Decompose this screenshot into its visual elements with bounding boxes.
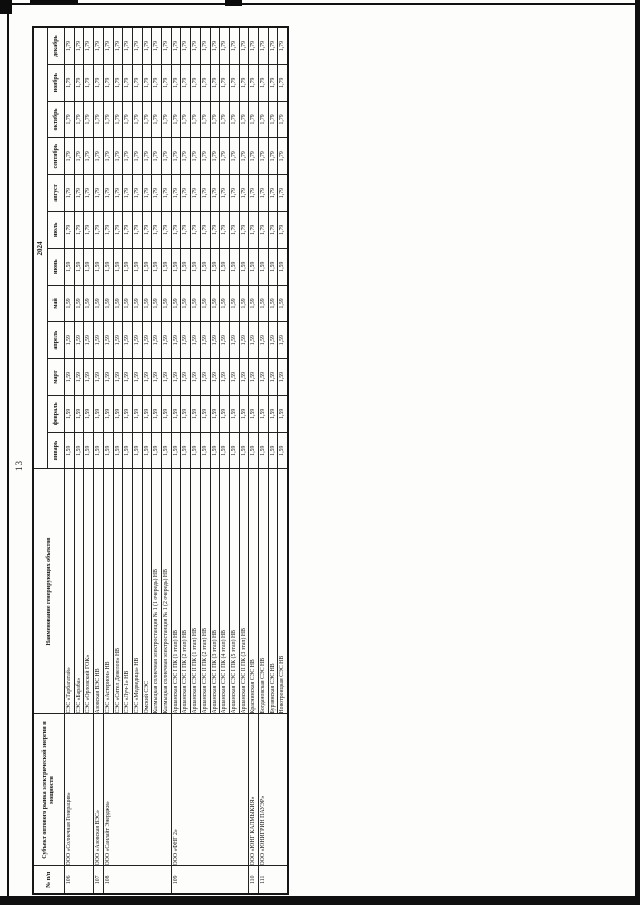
value-cell: 1,79 [278,27,288,64]
table-row: 110ООО «ЮНГ КАЛМЫКИЯ»Краснинская СЭС НВ1… [249,27,259,894]
value-cell: 1,59 [210,322,220,359]
value-cell: 1,79 [123,138,133,175]
value-cell: 1,79 [249,175,259,212]
value-cell: 1,59 [103,395,113,432]
value-cell: 1,79 [74,138,84,175]
value-cell: 1,79 [152,27,162,64]
value-cell: 1,59 [200,248,210,285]
value-cell: 1,59 [152,359,162,396]
value-cell: 1,79 [142,64,152,101]
value-cell: 1,59 [132,395,142,432]
value-cell: 1,79 [84,138,94,175]
value-cell: 1,59 [103,322,113,359]
value-cell: 1,79 [123,175,133,212]
value-cell: 1,59 [249,395,259,432]
object-name-cell: Аршанская СЭС I ПК (2 этап) НВ [181,469,191,714]
value-cell: 1,59 [259,359,269,396]
value-cell: 1,59 [84,432,94,469]
value-cell: 1,59 [220,432,230,469]
value-cell: 1,59 [229,395,239,432]
value-cell: 1,59 [142,359,152,396]
scanned-document-page: 13 № п/п Субъект оптового рынка электрич… [0,0,640,905]
value-cell: 1,79 [249,101,259,138]
value-cell: 1,79 [181,211,191,248]
value-cell: 1,79 [191,101,201,138]
value-cell: 1,79 [162,211,172,248]
value-cell: 1,79 [229,101,239,138]
value-cell: 1,79 [84,175,94,212]
value-cell: 1,79 [103,64,113,101]
object-name-cell: Богдановская СЭС НВ [259,469,269,714]
value-cell: 1,59 [74,395,84,432]
subject-cell: ООО «ЮНГ КАЛМЫКИЯ» [249,714,259,866]
value-cell: 1,59 [210,359,220,396]
object-name-cell: СЭС «Луч-1» НВ [123,469,133,714]
value-cell: 1,79 [132,101,142,138]
object-name-cell: СЭС «Бараба» [74,469,84,714]
table-row: 109ООО «ФНГ 2»Аршанская СЭС I ПК (1 этап… [171,27,181,894]
value-cell: 1,79 [84,27,94,64]
value-cell: 1,79 [162,138,172,175]
value-cell: 1,79 [152,101,162,138]
value-cell: 1,79 [259,175,269,212]
value-cell: 1,59 [84,359,94,396]
value-cell: 1,59 [210,285,220,322]
value-cell: 1,79 [210,27,220,64]
row-number-cell: 108 [103,866,171,894]
value-cell: 1,59 [239,322,249,359]
value-cell: 1,59 [229,359,239,396]
value-cell: 1,79 [171,211,181,248]
value-cell: 1,59 [191,395,201,432]
value-cell: 1,59 [249,359,259,396]
value-cell: 1,59 [171,359,181,396]
value-cell: 1,79 [278,101,288,138]
value-cell: 1,59 [74,285,84,322]
row-number-cell: 109 [171,866,249,894]
subject-cell: ООО «Санлайт Энерджи» [103,714,171,866]
value-cell: 1,79 [278,64,288,101]
value-cell: 1,79 [65,175,75,212]
object-name-cell: СЭС «Астерион» НВ [103,469,113,714]
value-cell: 1,59 [220,322,230,359]
value-cell: 1,79 [113,211,123,248]
month-header-cell: май [48,285,65,322]
value-cell: 1,59 [181,359,191,396]
generating-objects-table: № п/п Субъект оптового рынка электрическ… [32,26,289,895]
value-cell: 1,59 [152,432,162,469]
month-header-cell: декабрь [48,27,65,64]
value-cell: 1,79 [171,27,181,64]
value-cell: 1,59 [268,322,278,359]
value-cell: 1,79 [191,211,201,248]
value-cell: 1,59 [152,248,162,285]
value-cell: 1,79 [181,138,191,175]
value-cell: 1,59 [132,432,142,469]
value-cell: 1,59 [239,359,249,396]
value-cell: 1,59 [94,432,104,469]
table-row: 107ООО «Азовская ВЭС»Азовская ВЭС НВ1,59… [94,27,104,894]
row-number-cell: 111 [259,866,289,894]
value-cell: 1,79 [94,175,104,212]
value-cell: 1,79 [132,27,142,64]
value-cell: 1,79 [84,64,94,101]
value-cell: 1,79 [229,64,239,101]
object-name-cell: Аршанская СЭС I ПК (1 этап) НВ [171,469,181,714]
value-cell: 1,79 [210,211,220,248]
value-cell: 1,59 [94,248,104,285]
object-name-cell: СЭС «Орловский ГОК» [84,469,94,714]
value-cell: 1,79 [181,64,191,101]
value-cell: 1,59 [249,285,259,322]
value-cell: 1,79 [103,211,113,248]
month-header-cell: июль [48,211,65,248]
value-cell: 1,59 [132,285,142,322]
value-cell: 1,59 [84,248,94,285]
value-cell: 1,79 [268,138,278,175]
value-cell: 1,59 [181,432,191,469]
value-cell: 1,59 [268,432,278,469]
value-cell: 1,59 [113,432,123,469]
value-cell: 1,59 [84,395,94,432]
table-row: 111ООО «ЮНИГРИН ПАУЭР»Богдановская СЭС Н… [259,27,269,894]
value-cell: 1,79 [268,64,278,101]
value-cell: 1,79 [259,101,269,138]
object-name-cell: Новотроицкая СЭС НВ [278,469,288,714]
value-cell: 1,59 [65,248,75,285]
value-cell: 1,59 [229,322,239,359]
value-cell: 1,79 [191,138,201,175]
value-cell: 1,79 [74,211,84,248]
value-cell: 1,59 [210,248,220,285]
value-cell: 1,79 [132,211,142,248]
value-cell: 1,59 [259,248,269,285]
value-cell: 1,79 [220,138,230,175]
table-row: 108ООО «Санлайт Энерджи»СЭС «Астерион» Н… [103,27,113,894]
value-cell: 1,79 [123,211,133,248]
value-cell: 1,59 [268,248,278,285]
object-name-cell: Аршанская СЭС II ПК (2 этап) НВ [200,469,210,714]
row-number-cell: 106 [65,866,94,894]
value-cell: 1,79 [84,101,94,138]
value-cell: 1,79 [268,101,278,138]
value-cell: 1,79 [278,138,288,175]
value-cell: 1,79 [210,175,220,212]
value-cell: 1,79 [123,27,133,64]
value-cell: 1,79 [113,138,123,175]
value-cell: 1,79 [191,175,201,212]
value-cell: 1,79 [278,211,288,248]
value-cell: 1,59 [162,432,172,469]
value-cell: 1,79 [74,101,84,138]
value-cell: 1,79 [259,27,269,64]
value-cell: 1,79 [259,64,269,101]
value-cell: 1,59 [210,395,220,432]
value-cell: 1,79 [229,138,239,175]
value-cell: 1,79 [94,138,104,175]
value-cell: 1,59 [132,248,142,285]
object-name-cell: Калмыцкая солнечная электростанция № 1 (… [162,469,172,714]
value-cell: 1,59 [239,395,249,432]
value-cell: 1,79 [113,175,123,212]
value-cell: 1,59 [113,248,123,285]
value-cell: 1,59 [200,322,210,359]
value-cell: 1,79 [142,175,152,212]
value-cell: 1,79 [239,211,249,248]
value-cell: 1,59 [259,285,269,322]
value-cell: 1,59 [220,395,230,432]
object-name-cell: Калмыцкая солнечная электростанция № 1 (… [152,469,162,714]
value-cell: 1,79 [200,101,210,138]
value-cell: 1,59 [74,248,84,285]
value-cell: 1,59 [229,285,239,322]
month-header-cell: август [48,175,65,212]
month-header-cell: январь [48,432,65,469]
value-cell: 1,79 [249,138,259,175]
value-cell: 1,59 [103,285,113,322]
value-cell: 1,59 [123,359,133,396]
month-header-cell: апрель [48,322,65,359]
object-name-cell: Аршанская СЭС I ПК (5 этап) НВ [229,469,239,714]
value-cell: 1,79 [65,27,75,64]
value-cell: 1,59 [142,322,152,359]
value-cell: 1,59 [94,359,104,396]
value-cell: 1,79 [229,27,239,64]
value-cell: 1,79 [278,175,288,212]
page-number: 13 [14,460,24,471]
month-header-cell: сентябрь [48,138,65,175]
column-header-object: Наименование генерирующих объектов [33,469,65,714]
value-cell: 1,79 [123,64,133,101]
object-name-cell: СЭС «Медведица» НВ [132,469,142,714]
value-cell: 1,59 [152,395,162,432]
value-cell: 1,79 [74,64,84,101]
value-cell: 1,59 [249,432,259,469]
subject-cell: ООО «Солнечная Генерация» [65,714,94,866]
value-cell: 1,59 [259,322,269,359]
value-cell: 1,79 [200,211,210,248]
value-cell: 1,59 [268,359,278,396]
value-cell: 1,59 [200,359,210,396]
value-cell: 1,59 [268,285,278,322]
value-cell: 1,59 [123,285,133,322]
column-header-num: № п/п [33,866,65,894]
value-cell: 1,79 [171,175,181,212]
value-cell: 1,59 [181,395,191,432]
value-cell: 1,79 [65,64,75,101]
value-cell: 1,59 [65,359,75,396]
value-cell: 1,59 [74,432,84,469]
value-cell: 1,59 [74,359,84,396]
value-cell: 1,79 [65,211,75,248]
value-cell: 1,79 [268,175,278,212]
value-cell: 1,59 [210,432,220,469]
object-name-cell: Азовская ВЭС НВ [94,469,104,714]
value-cell: 1,59 [278,359,288,396]
value-cell: 1,59 [162,359,172,396]
value-cell: 1,79 [171,101,181,138]
value-cell: 1,59 [123,248,133,285]
value-cell: 1,79 [113,101,123,138]
value-cell: 1,79 [94,64,104,101]
value-cell: 1,59 [94,322,104,359]
value-cell: 1,79 [239,138,249,175]
value-cell: 1,79 [162,27,172,64]
value-cell: 1,59 [162,395,172,432]
value-cell: 1,79 [220,101,230,138]
value-cell: 1,79 [239,101,249,138]
rotated-content-layer: 13 № п/п Субъект оптового рынка электрич… [0,0,640,905]
value-cell: 1,79 [152,211,162,248]
value-cell: 1,59 [229,432,239,469]
value-cell: 1,79 [103,138,113,175]
object-name-cell: Краснинская СЭС НВ [249,469,259,714]
value-cell: 1,59 [220,248,230,285]
value-cell: 1,59 [162,285,172,322]
value-cell: 1,79 [181,101,191,138]
value-cell: 1,79 [123,101,133,138]
value-cell: 1,79 [210,101,220,138]
value-cell: 1,59 [94,395,104,432]
row-number-cell: 110 [249,866,259,894]
value-cell: 1,59 [84,285,94,322]
value-cell: 1,79 [229,175,239,212]
month-header-cell: июнь [48,248,65,285]
value-cell: 1,79 [113,27,123,64]
value-cell: 1,79 [181,27,191,64]
value-cell: 1,59 [181,285,191,322]
value-cell: 1,79 [103,101,113,138]
value-cell: 1,59 [142,432,152,469]
value-cell: 1,59 [200,285,210,322]
value-cell: 1,59 [103,432,113,469]
month-header-cell: март [48,359,65,396]
subject-cell: ООО «ЮНИГРИН ПАУЭР» [259,714,289,866]
value-cell: 1,79 [162,101,172,138]
value-cell: 1,79 [152,138,162,175]
object-name-cell: Аршанская СЭС I ПК (3 этап) НВ [210,469,220,714]
value-cell: 1,59 [123,322,133,359]
value-cell: 1,59 [249,322,259,359]
value-cell: 1,59 [123,432,133,469]
value-cell: 1,59 [171,432,181,469]
value-cell: 1,79 [171,138,181,175]
value-cell: 1,79 [200,175,210,212]
value-cell: 1,79 [142,138,152,175]
value-cell: 1,59 [84,322,94,359]
value-cell: 1,79 [113,64,123,101]
value-cell: 1,79 [65,101,75,138]
subject-cell: ООО «ФНГ 2» [171,714,249,866]
value-cell: 1,59 [152,285,162,322]
value-cell: 1,79 [132,175,142,212]
value-cell: 1,79 [94,211,104,248]
table-body: 106ООО «Солнечная Генерация»СЭС «Тарбага… [65,27,289,894]
value-cell: 1,59 [239,432,249,469]
table-row: 106ООО «Солнечная Генерация»СЭС «Тарбага… [65,27,75,894]
value-cell: 1,59 [181,322,191,359]
value-cell: 1,79 [239,64,249,101]
value-cell: 1,79 [220,27,230,64]
value-cell: 1,79 [103,27,113,64]
object-name-cell: СЭС «Сител Девелоп» НВ [113,469,123,714]
value-cell: 1,79 [268,27,278,64]
month-header-cell: ноябрь [48,64,65,101]
table-header: № п/п Субъект оптового рынка электрическ… [33,27,65,894]
object-name-cell: СЭС «Тарбагатай» [65,469,75,714]
value-cell: 1,59 [65,395,75,432]
month-header-cell: октябрь [48,101,65,138]
value-cell: 1,79 [239,27,249,64]
value-cell: 1,79 [152,175,162,212]
value-cell: 1,79 [259,211,269,248]
value-cell: 1,79 [94,101,104,138]
value-cell: 1,59 [132,359,142,396]
value-cell: 1,59 [220,359,230,396]
value-cell: 1,79 [65,138,75,175]
value-cell: 1,79 [191,64,201,101]
value-cell: 1,79 [162,64,172,101]
value-cell: 1,79 [249,27,259,64]
value-cell: 1,59 [239,285,249,322]
value-cell: 1,79 [239,175,249,212]
value-cell: 1,79 [74,27,84,64]
row-number-cell: 107 [94,866,104,894]
value-cell: 1,59 [191,248,201,285]
value-cell: 1,79 [220,64,230,101]
value-cell: 1,79 [84,211,94,248]
value-cell: 1,79 [142,27,152,64]
value-cell: 1,79 [210,138,220,175]
value-cell: 1,59 [94,285,104,322]
object-name-cell: Бурзянская СЭС НВ [268,469,278,714]
value-cell: 1,59 [113,322,123,359]
value-cell: 1,59 [191,359,201,396]
value-cell: 1,79 [132,138,142,175]
year-header-cell: 2024 [33,27,48,469]
value-cell: 1,59 [191,432,201,469]
value-cell: 1,59 [65,432,75,469]
value-cell: 1,59 [278,248,288,285]
value-cell: 1,79 [74,175,84,212]
value-cell: 1,79 [132,64,142,101]
value-cell: 1,79 [94,27,104,64]
object-name-cell: Аршанская СЭС I ПК (4 этап) НВ [220,469,230,714]
object-name-cell: Омский СЭС [142,469,152,714]
value-cell: 1,59 [103,359,113,396]
value-cell: 1,59 [220,285,230,322]
value-cell: 1,59 [239,248,249,285]
value-cell: 1,59 [113,395,123,432]
value-cell: 1,59 [200,395,210,432]
value-cell: 1,79 [103,175,113,212]
value-cell: 1,59 [152,322,162,359]
value-cell: 1,79 [200,138,210,175]
value-cell: 1,59 [249,248,259,285]
column-header-subject: Субъект оптового рынка электрической эне… [33,714,65,866]
value-cell: 1,59 [181,248,191,285]
object-name-cell: Аршанская СЭС II ПК (3 этап) НВ [239,469,249,714]
value-cell: 1,79 [200,64,210,101]
value-cell: 1,59 [162,248,172,285]
value-cell: 1,79 [200,27,210,64]
value-cell: 1,59 [65,322,75,359]
value-cell: 1,59 [259,395,269,432]
value-cell: 1,59 [113,359,123,396]
value-cell: 1,59 [191,322,201,359]
value-cell: 1,59 [171,322,181,359]
value-cell: 1,79 [259,138,269,175]
